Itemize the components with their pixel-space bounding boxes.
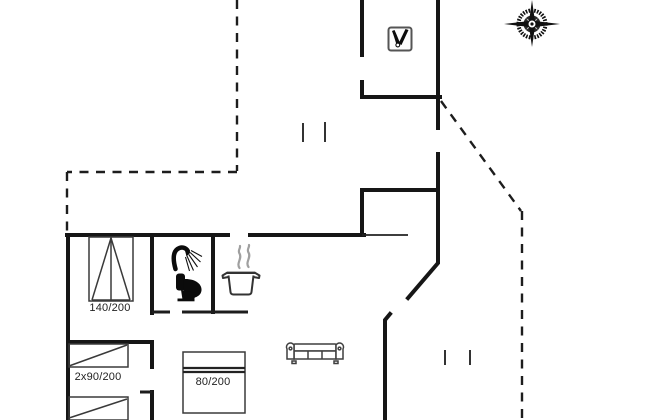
- compass-rose-icon: [504, 0, 560, 47]
- toilet-icon: [176, 274, 202, 302]
- sofa-icon: [286, 343, 343, 364]
- floor-plan: 140/200 2x90/200 80/200: [0, 0, 650, 420]
- double-bed-size-label: 140/200: [79, 302, 141, 314]
- double-bed-icon: [89, 237, 133, 301]
- floor-plan-drawing: [0, 0, 650, 420]
- cooking-pot-icon: [223, 245, 260, 295]
- twin-beds-size-label: 2x90/200: [61, 371, 135, 383]
- walls: [67, 0, 440, 420]
- wood-stove-icon: [389, 28, 412, 51]
- shower-icon: [174, 247, 202, 271]
- single-bed-size-label: 80/200: [181, 376, 245, 388]
